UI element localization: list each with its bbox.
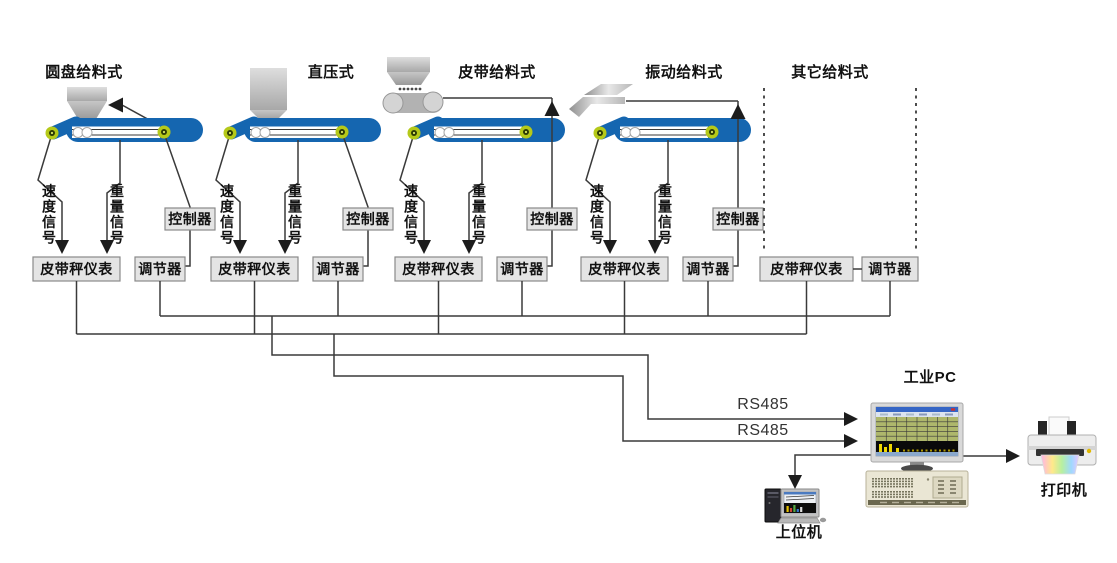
chassis-vent [911,496,913,498]
chassis-vent [896,494,898,496]
chassis-vent [908,494,910,496]
chassis-vent [899,486,901,488]
unit-title: 圆盘给料式 [45,63,123,81]
chassis-vent [899,483,901,485]
host-chart-bar [793,505,795,512]
chassis-vent [896,496,898,498]
speed-signal-arrow-icon [233,240,247,254]
material-dots [415,88,418,91]
chassis-vent [872,496,874,498]
chassis-vent [881,483,883,485]
chassis-vent [875,481,877,483]
unit-title: 直压式 [308,63,355,81]
chassis-vent [887,481,889,483]
chassis-vent [890,494,892,496]
unit-title: 其它给料式 [791,63,869,81]
vibratory-chute [569,97,625,117]
pc-chart-tick [939,450,941,452]
chassis-stripe-mark [880,502,887,503]
feeder-unit-disc: 速度信号重量信号圆盘给料式控制器皮带秤仪表调节器 [33,63,215,334]
chassis-vent [881,481,883,483]
pc-chart-tick [912,450,914,452]
chassis-screw [927,478,929,480]
chassis-vent [875,483,877,485]
controller-box-label: 控制器 [168,211,212,227]
chassis-vent [899,478,901,480]
chassis-vent [896,478,898,480]
chassis-vent [908,486,910,488]
chassis-vent [887,491,889,493]
chassis-vent [911,478,913,480]
chassis-vent [872,491,874,493]
chassis-vent [896,486,898,488]
industrial-pc-label: 工业PC [904,369,957,386]
chassis-stripe-mark [928,502,935,503]
chassis-vent [872,483,874,485]
chassis-vent [884,494,886,496]
chassis-vent [908,491,910,493]
regulator-box-label: 调节器 [316,261,360,277]
chassis-vent [893,494,895,496]
mini-conveyor-roller [423,92,443,112]
rs485-label-bottom: RS485 [737,422,788,439]
chassis-vent [899,491,901,493]
feeder-unit-vibratory: 速度信号重量信号振动给料式控制器皮带秤仪表调节器 [569,63,763,334]
belt-roller-pin [413,132,415,134]
belt-roller-pin [711,131,713,133]
chassis-vent [902,481,904,483]
pc-screen-close-icon [951,408,955,410]
hopper [387,57,430,72]
host-link-arrow-icon [788,475,802,489]
chassis-vent [875,491,877,493]
chassis-slot [938,492,944,494]
chassis-slot [938,488,944,490]
chassis-vent [881,478,883,480]
chassis-vent [905,486,907,488]
chassis-vent [881,486,883,488]
chassis-vent [884,491,886,493]
chassis-slot [950,488,956,490]
pc-toolbar-item [932,414,940,416]
weight-signal-label: 重量信号 [110,183,124,246]
rs485-label-top: RS485 [737,396,788,413]
material-dots [419,88,422,91]
feeder-unit-other: 其它给料式皮带秤仪表调节器 [760,63,918,334]
chassis-vent [884,478,886,480]
chassis-vent [893,491,895,493]
chassis-stripe-mark [892,502,899,503]
feeder-unit-belt-feeder: 速度信号重量信号皮带给料式控制器皮带秤仪表调节器 [383,57,577,334]
pc-chart-bar [896,448,899,452]
belt-roller-pin [163,131,165,133]
host-screen-header [784,492,816,495]
speed-signal-label: 速度信号 [590,183,605,246]
belt-roller-pin [51,132,53,134]
weighing-idler [444,128,454,138]
belt-roller-pin [229,132,231,134]
controller-line [342,133,368,266]
chassis-vent [893,481,895,483]
controller-box-label: 控制器 [530,211,574,227]
chassis-drive-bay [933,477,962,498]
pc-toolbar-item [906,414,914,416]
regulator-box-label: 调节器 [868,261,912,277]
chassis-vent [905,483,907,485]
pc-chart-tick [903,450,905,452]
chassis-vent [893,486,895,488]
feeder-control-arrow-icon [108,98,123,113]
chassis-vent [878,491,880,493]
chassis-slot [950,484,956,486]
chassis-vent [875,478,877,480]
chassis-vent [890,486,892,488]
chassis-vent [902,494,904,496]
material-dots [411,88,414,91]
printer-link-arrow-icon [1006,449,1020,463]
pc-toolbar-item [919,414,927,416]
speed-signal-label: 速度信号 [220,183,235,246]
speed-signal-arrow-icon [417,240,431,254]
pc-chart-tick [935,450,937,452]
host-chart-bar [787,506,789,512]
chassis-vent [893,496,895,498]
pc-toolbar-item [893,414,901,416]
chassis-stripe-mark [904,502,911,503]
pc-chart-tick [908,450,910,452]
host-link-line [795,455,871,477]
chassis-vent [902,486,904,488]
hopper-funnel [67,101,107,119]
regulator-box-label: 调节器 [500,261,544,277]
pc-chart-tick [930,450,932,452]
material-dots [407,88,410,91]
pc-chart-tick [948,450,950,452]
belt-roller-pin [599,132,601,134]
printer-label: 打印机 [1041,481,1088,499]
weight-signal-label: 重量信号 [288,183,302,246]
weight-signal-label: 重量信号 [472,183,486,246]
chassis-slot [938,480,944,482]
instrument-box-label: 皮带秤仪表 [217,261,291,277]
host-chart-bar [800,507,802,512]
chassis-stripe-mark [952,502,959,503]
chassis-vent [890,478,892,480]
material-dots [399,88,402,91]
industrial-pc: 工业PC [788,369,1020,507]
chassis-vent [887,496,889,498]
pc-chart-bar [889,444,892,452]
chassis-vent [881,491,883,493]
chassis-vent [911,491,913,493]
chassis-vent [887,486,889,488]
weighing-idler [260,128,270,138]
chassis-stripe-mark [916,502,923,503]
chassis-vent [878,478,880,480]
rs485-arrow-icon [844,434,858,448]
chassis-vent [908,483,910,485]
chassis-vent [890,491,892,493]
chassis-vent [872,486,874,488]
pc-chart-tick [917,450,919,452]
host-computer-label: 上位机 [776,523,823,541]
chassis-vent [905,491,907,493]
chassis-vent [905,478,907,480]
chassis-vent [875,486,877,488]
feeder-control-arrow-icon [545,101,560,116]
chassis-vent [878,481,880,483]
chassis-vent [887,494,889,496]
chassis-vent [908,481,910,483]
instrument-box-label: 皮带秤仪表 [587,261,661,277]
pc-screen-statusbar [876,452,958,456]
chassis-stripe-mark [940,502,947,503]
chassis-vent [872,494,874,496]
printer-paper-out [1041,455,1079,474]
chassis-vent [905,481,907,483]
chassis-vent [905,496,907,498]
belt-roller-pin [341,131,343,133]
chassis-vent [884,483,886,485]
printer: 打印机 [1028,417,1096,499]
host-drive-slot [768,496,779,498]
chassis-slot [950,492,956,494]
feeder-control-arrow-icon [731,104,746,119]
controller-box-label: 控制器 [716,211,760,227]
feeder-unit-press: 速度信号重量信号直压式控制器皮带秤仪表调节器 [211,63,393,334]
host-drive-slot [768,492,779,494]
chassis-vent [902,478,904,480]
chassis-vent [902,483,904,485]
chassis-vent [875,496,877,498]
controller-line [164,133,190,266]
weighing-idler [630,128,640,138]
chassis-vent [890,481,892,483]
chassis-vent [890,483,892,485]
chassis-vent [881,496,883,498]
speed-signal-label: 速度信号 [42,183,57,246]
material-dots [403,88,406,91]
instrument-box-label: 皮带秤仪表 [769,261,843,277]
chassis-vent [890,496,892,498]
pc-chart-bar [879,444,882,452]
chassis-vent [911,486,913,488]
diagram-svg: 速度信号重量信号圆盘给料式控制器皮带秤仪表调节器速度信号重量信号直压式控制器皮带… [0,0,1117,563]
instrument-box-label: 皮带秤仪表 [401,261,475,277]
pc-chart-tick [926,450,928,452]
host-power-button [769,502,771,504]
pc-chart-tick [944,450,946,452]
instrument-box-label: 皮带秤仪表 [39,261,113,277]
host-computer: 上位机 [765,489,826,541]
chassis-vent [884,496,886,498]
weight-signal-label: 重量信号 [658,183,672,246]
chassis-vent [884,486,886,488]
chassis-vent [878,494,880,496]
hopper [67,87,107,101]
chassis-vent [893,483,895,485]
hopper-funnel [387,72,430,85]
regulator-box-label: 调节器 [138,261,182,277]
chassis-vent [872,481,874,483]
host-chart-bar [797,509,799,512]
printer-indicator-light [1087,449,1091,453]
host-keyboard [778,518,820,523]
chassis-vent [908,478,910,480]
chassis-vent [872,478,874,480]
chassis-vent [875,494,877,496]
chassis-vent [899,496,901,498]
pc-toolbar-item [880,414,888,416]
chassis-vent [905,494,907,496]
pc-screen-titlebar [876,407,958,412]
mini-conveyor-roller [383,93,403,113]
controller-box-label: 控制器 [346,211,390,227]
pc-chart-bar [884,447,887,452]
chassis-vent [911,481,913,483]
belt-roller-pin [525,131,527,133]
chassis-vent [899,494,901,496]
speed-signal-label: 速度信号 [404,183,419,246]
pc-toolbar-item [945,414,953,416]
vibratory-plate [584,84,633,95]
chassis-vent [887,483,889,485]
feeder-control-system-diagram: 速度信号重量信号圆盘给料式控制器皮带秤仪表调节器速度信号重量信号直压式控制器皮带… [0,0,1117,563]
pc-chart-tick [953,450,955,452]
chassis-vent [902,496,904,498]
chassis-vent [896,483,898,485]
hopper [250,68,287,110]
host-screen-chart [784,503,816,513]
speed-signal-arrow-icon [55,240,69,254]
rs485-arrow-icon [844,412,858,426]
weighing-idler [82,128,92,138]
host-chart-bar [790,508,792,512]
pc-chart-tick [921,450,923,452]
chassis-vent [893,478,895,480]
chassis-slot [938,484,944,486]
chassis-vent [881,494,883,496]
chassis-vent [908,496,910,498]
chassis-vent [887,478,889,480]
chassis-vent [902,491,904,493]
chassis-vent [878,496,880,498]
chassis-vent [878,486,880,488]
chassis-vent [911,483,913,485]
chassis-vent [896,491,898,493]
chassis-slot [950,480,956,482]
chassis-vent [911,494,913,496]
unit-title: 振动给料式 [645,63,723,81]
chassis-vent [884,481,886,483]
chassis-vent [899,481,901,483]
chassis-vent [896,481,898,483]
regulator-box-label: 调节器 [686,261,730,277]
host-mouse [820,518,826,522]
communication-bus: RS485RS485 [77,316,891,448]
chassis-vent [878,483,880,485]
unit-title: 皮带给料式 [458,63,536,81]
speed-signal-arrow-icon [603,240,617,254]
printer-paper-in [1049,417,1069,437]
